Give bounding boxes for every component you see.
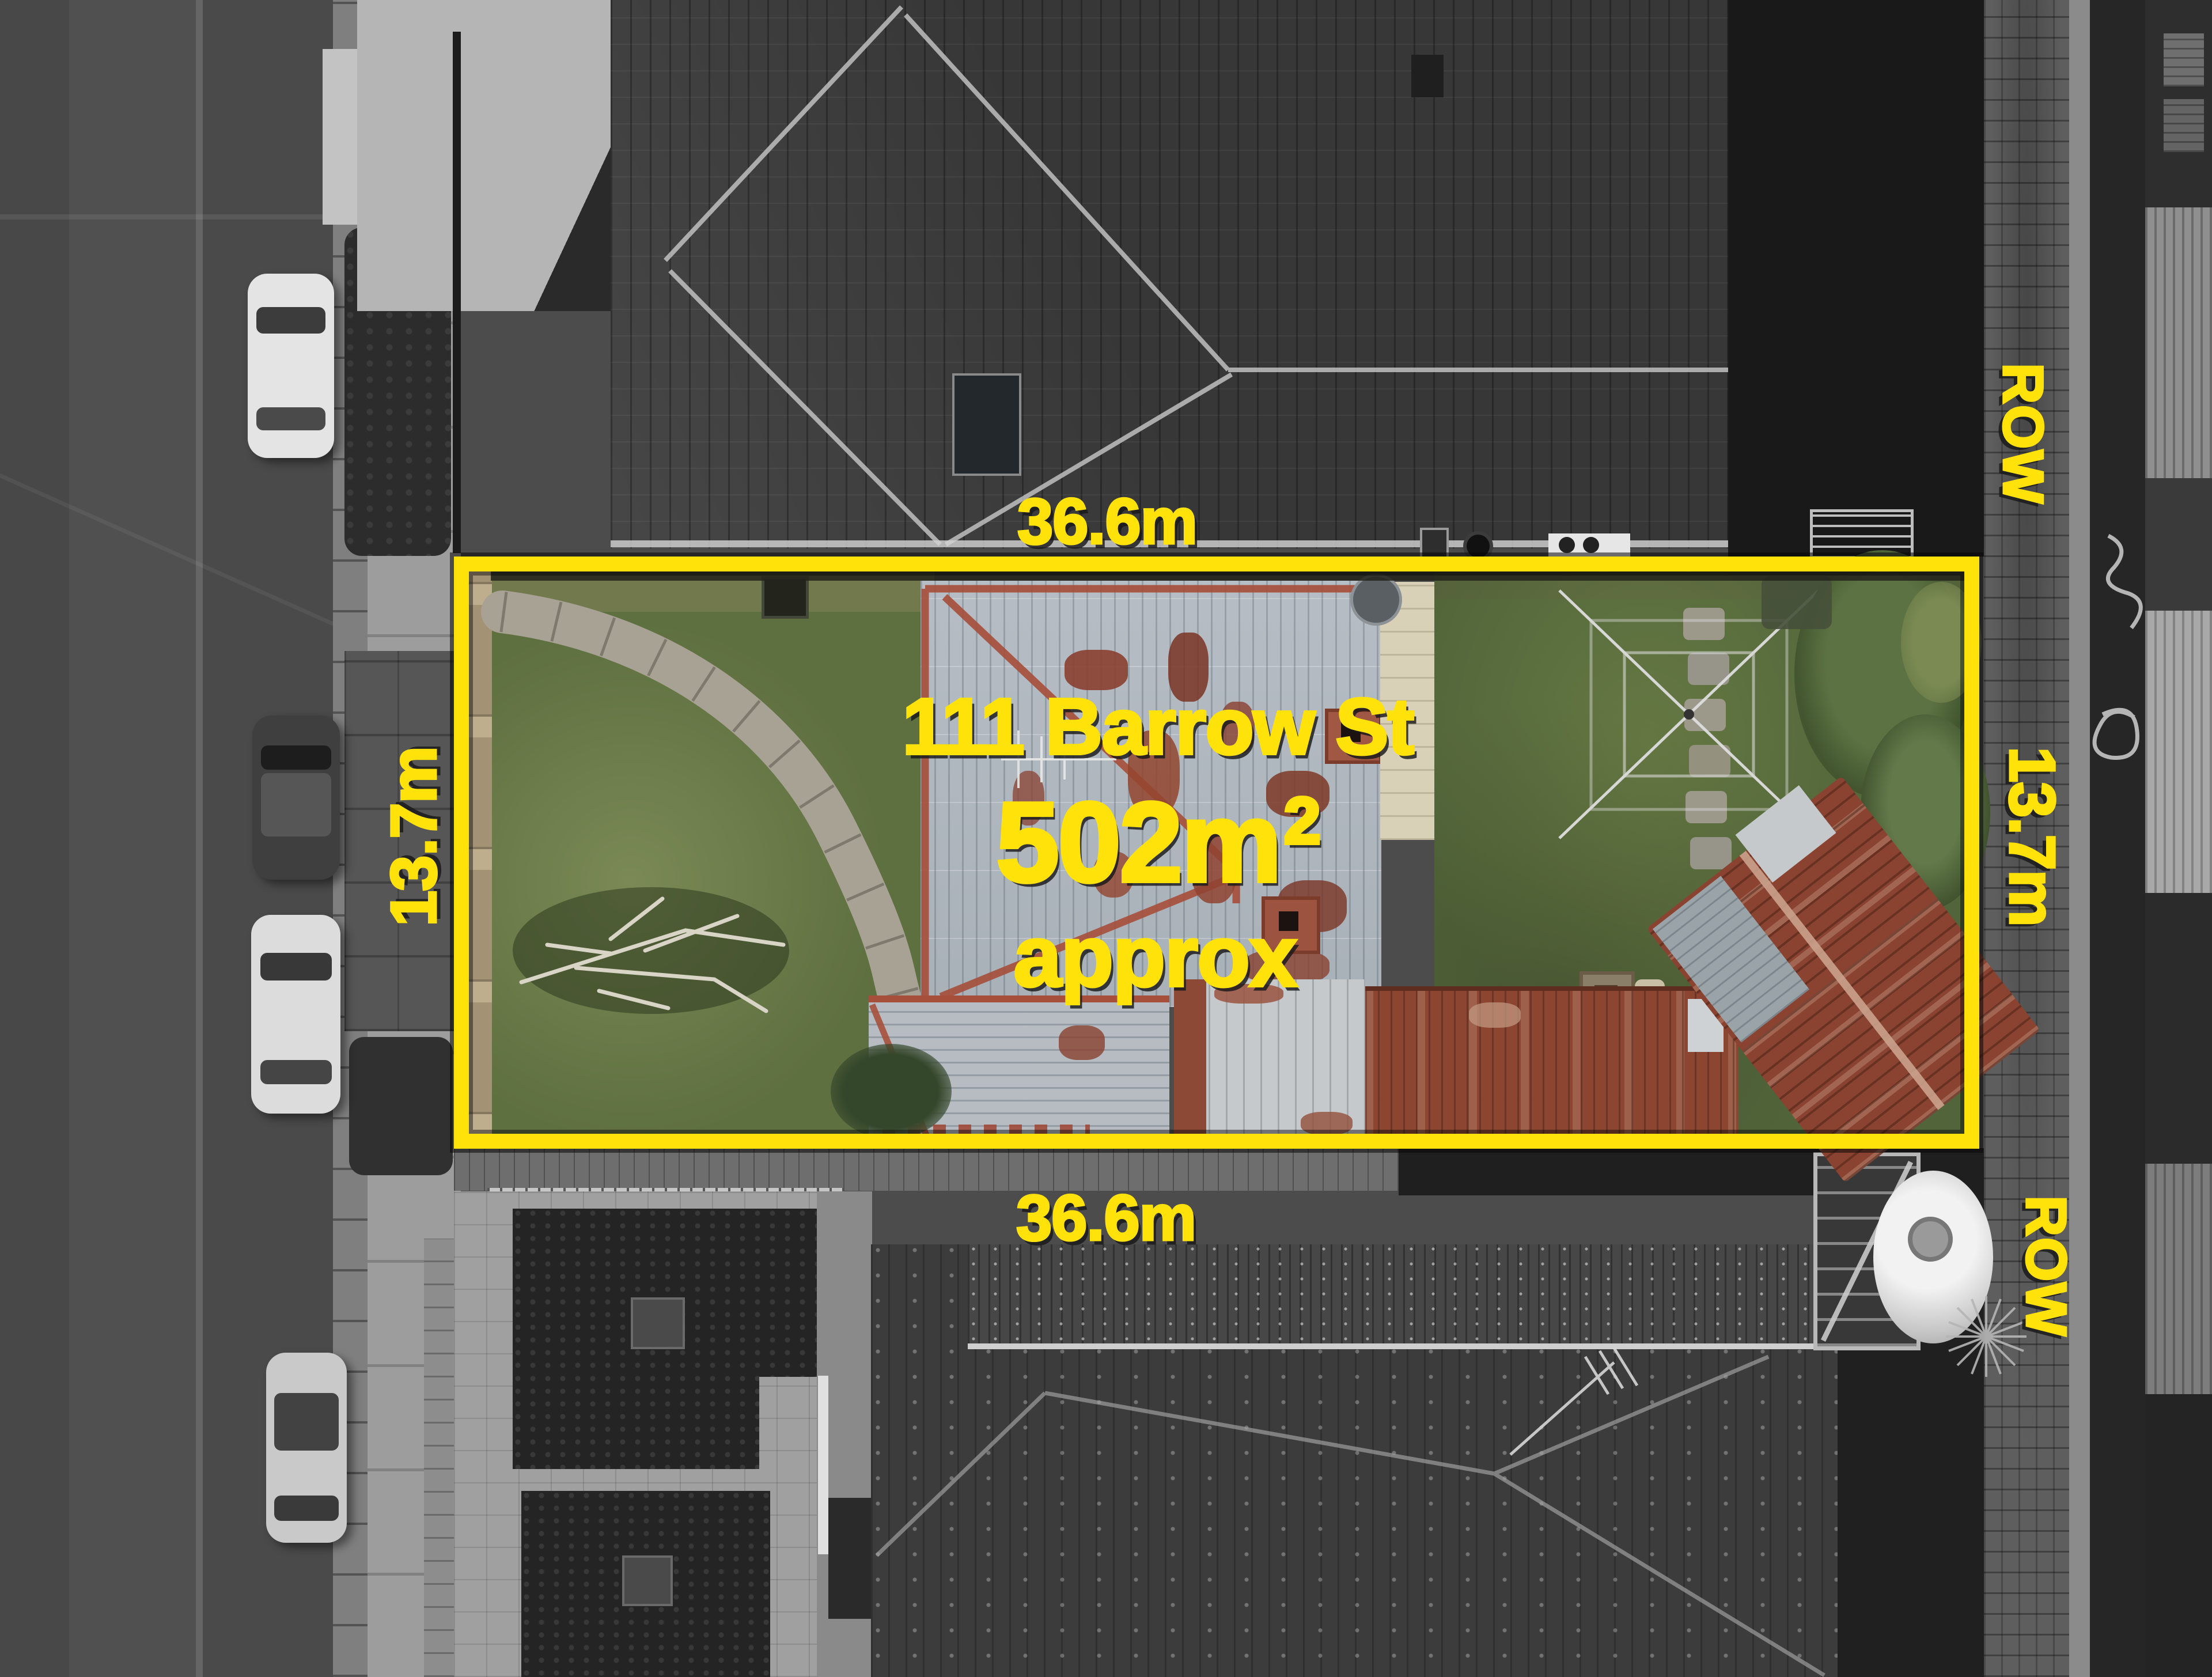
approx-label: approx: [1013, 907, 1296, 1006]
east-roof-ribbed: [2145, 611, 2212, 893]
car-rear-window: [260, 1060, 332, 1084]
graffiti: [2085, 518, 2154, 864]
timber-deck: [454, 1148, 1399, 1191]
porch-strip: [817, 1191, 872, 1677]
east-roof-ribbed: [2145, 207, 2212, 478]
dimension-right: 13.7m: [1995, 747, 2070, 926]
chimney: [2164, 33, 2204, 86]
top-neighbour-roof: [611, 0, 1728, 548]
hedge: [513, 1209, 865, 1377]
parked-car: [266, 1353, 347, 1543]
car-roof: [261, 773, 331, 836]
east-gap: [2145, 893, 2212, 1164]
tv-antenna: [1499, 1339, 1649, 1466]
doorway: [828, 1498, 871, 1619]
solar-panel: [952, 373, 1021, 476]
parked-car: [251, 915, 340, 1114]
area-label: 502m2: [997, 778, 1320, 907]
car-rear-window: [274, 1496, 339, 1521]
car-windshield: [260, 953, 332, 981]
roof-ridge-lines: [611, 0, 1728, 548]
car-windshield: [256, 307, 325, 334]
car-windshield: [261, 745, 331, 770]
car-windshield: [274, 1393, 339, 1451]
hedge: [513, 1374, 759, 1469]
appliance: [1548, 533, 1630, 557]
parked-car: [252, 716, 340, 880]
dimension-left: 13.7m: [377, 747, 451, 926]
address-label: 111 Barrow St: [902, 682, 1413, 773]
row-label-bottom: ROW: [2014, 1195, 2079, 1337]
roof-vent: [1411, 55, 1444, 97]
row-label-top: ROW: [1991, 363, 2056, 504]
bottom-neighbour-roof: [871, 1244, 1838, 1677]
car-rear-window: [256, 407, 325, 430]
hedge-planter: [622, 1555, 673, 1606]
road-seam: [0, 214, 331, 219]
roof-ridge-lines: [871, 1244, 1838, 1677]
east-building: [2145, 0, 2212, 207]
east-gap: [2145, 478, 2212, 611]
hedge-planter: [631, 1297, 685, 1349]
area-value: 502m: [997, 779, 1281, 906]
east-roof-ribbed: [2145, 1164, 2212, 1394]
east-gap: [2145, 1394, 2212, 1677]
dimension-top: 36.6m: [1017, 484, 1197, 559]
front-fence-line: [453, 32, 461, 553]
chimney: [2164, 99, 2204, 152]
nature-strip-garden: [349, 1037, 453, 1175]
aerial-photo: 36.6m 36.6m 13.7m 13.7m ROW ROW 111 Barr…: [0, 0, 2212, 1677]
ac-unit: [1420, 528, 1449, 559]
porch-post: [818, 1376, 828, 1554]
parked-car: [248, 274, 334, 458]
dimension-bottom: 36.6m: [1016, 1181, 1196, 1255]
area-exponent: 2: [1284, 784, 1319, 857]
dark-yard: [1728, 0, 1985, 557]
